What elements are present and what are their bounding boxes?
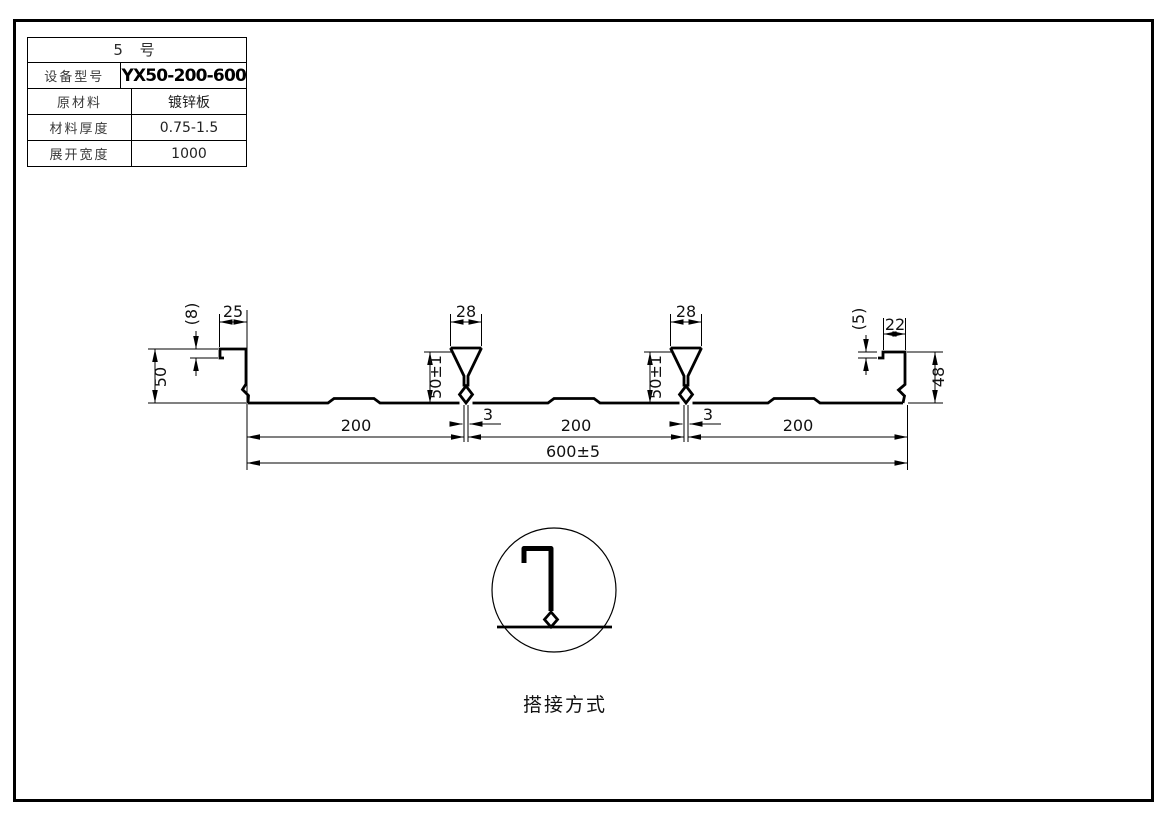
dim-rib2-gap-3: 3 xyxy=(670,405,721,442)
dim-text-rib1-gap: 3 xyxy=(483,405,493,424)
dim-rib1-height-50: 50±1 xyxy=(424,352,452,403)
drawing-sheet: 5 号 设备型号 YX50-200-600 原材料 镀锌板 材料厚度 0.75-… xyxy=(0,0,1169,827)
detail-circle xyxy=(492,528,616,652)
dim-text-rib1-height: 50±1 xyxy=(426,355,445,399)
detail-overlap-hook xyxy=(524,549,551,612)
dim-text-left-height: 50 xyxy=(151,367,170,387)
dim-right-lip-5: (5) xyxy=(849,308,877,375)
dim-rib1-top-28: 28 xyxy=(451,302,482,346)
dim-text-left-lip: (8) xyxy=(182,303,201,326)
dim-right-height-48: 48 xyxy=(907,352,948,403)
lap-joint-detail xyxy=(492,528,616,652)
dim-rib2-top-28: 28 xyxy=(671,302,702,346)
dim-text-right-height: 48 xyxy=(929,367,948,387)
left-edge-profile xyxy=(220,349,249,403)
dim-text-pitch-3: 200 xyxy=(783,416,814,435)
rib-2 xyxy=(671,348,702,403)
dim-rib2-height-50: 50±1 xyxy=(644,352,672,403)
detail-caption: 搭接方式 xyxy=(523,694,607,716)
rib-1-seam-diamond xyxy=(460,386,473,403)
dim-left-lip-8: (8) xyxy=(182,303,218,376)
dim-text-right-flange: 22 xyxy=(885,315,905,334)
dim-text-rib1-top: 28 xyxy=(456,302,476,321)
dim-overall-width: 600±5 xyxy=(247,442,908,463)
profile-drawing: 50 (8) 25 28 50±1 xyxy=(0,0,1169,827)
right-edge-profile xyxy=(878,352,905,403)
dim-text-pitch-1: 200 xyxy=(341,416,372,435)
dim-text-right-lip: (5) xyxy=(849,308,868,331)
detail-seam-diamond xyxy=(545,612,558,627)
dim-text-overall: 600±5 xyxy=(546,442,600,461)
dim-left-flange-25: 25 xyxy=(220,302,248,470)
panel-profile xyxy=(220,348,905,403)
dim-text-rib2-height: 50±1 xyxy=(646,355,665,399)
dim-rib1-gap-3: 3 xyxy=(450,405,501,442)
bottom-pan-3 xyxy=(693,399,904,404)
rib-2-seam-diamond xyxy=(680,386,693,403)
dim-text-rib2-gap: 3 xyxy=(703,405,713,424)
dim-left-height-50: 50 xyxy=(148,349,246,403)
dim-text-rib2-top: 28 xyxy=(676,302,696,321)
dim-right-flange-22: 22 xyxy=(884,315,906,350)
rib-1 xyxy=(451,348,482,403)
dim-text-pitch-2: 200 xyxy=(561,416,592,435)
dim-text-left-flange: 25 xyxy=(223,302,243,321)
